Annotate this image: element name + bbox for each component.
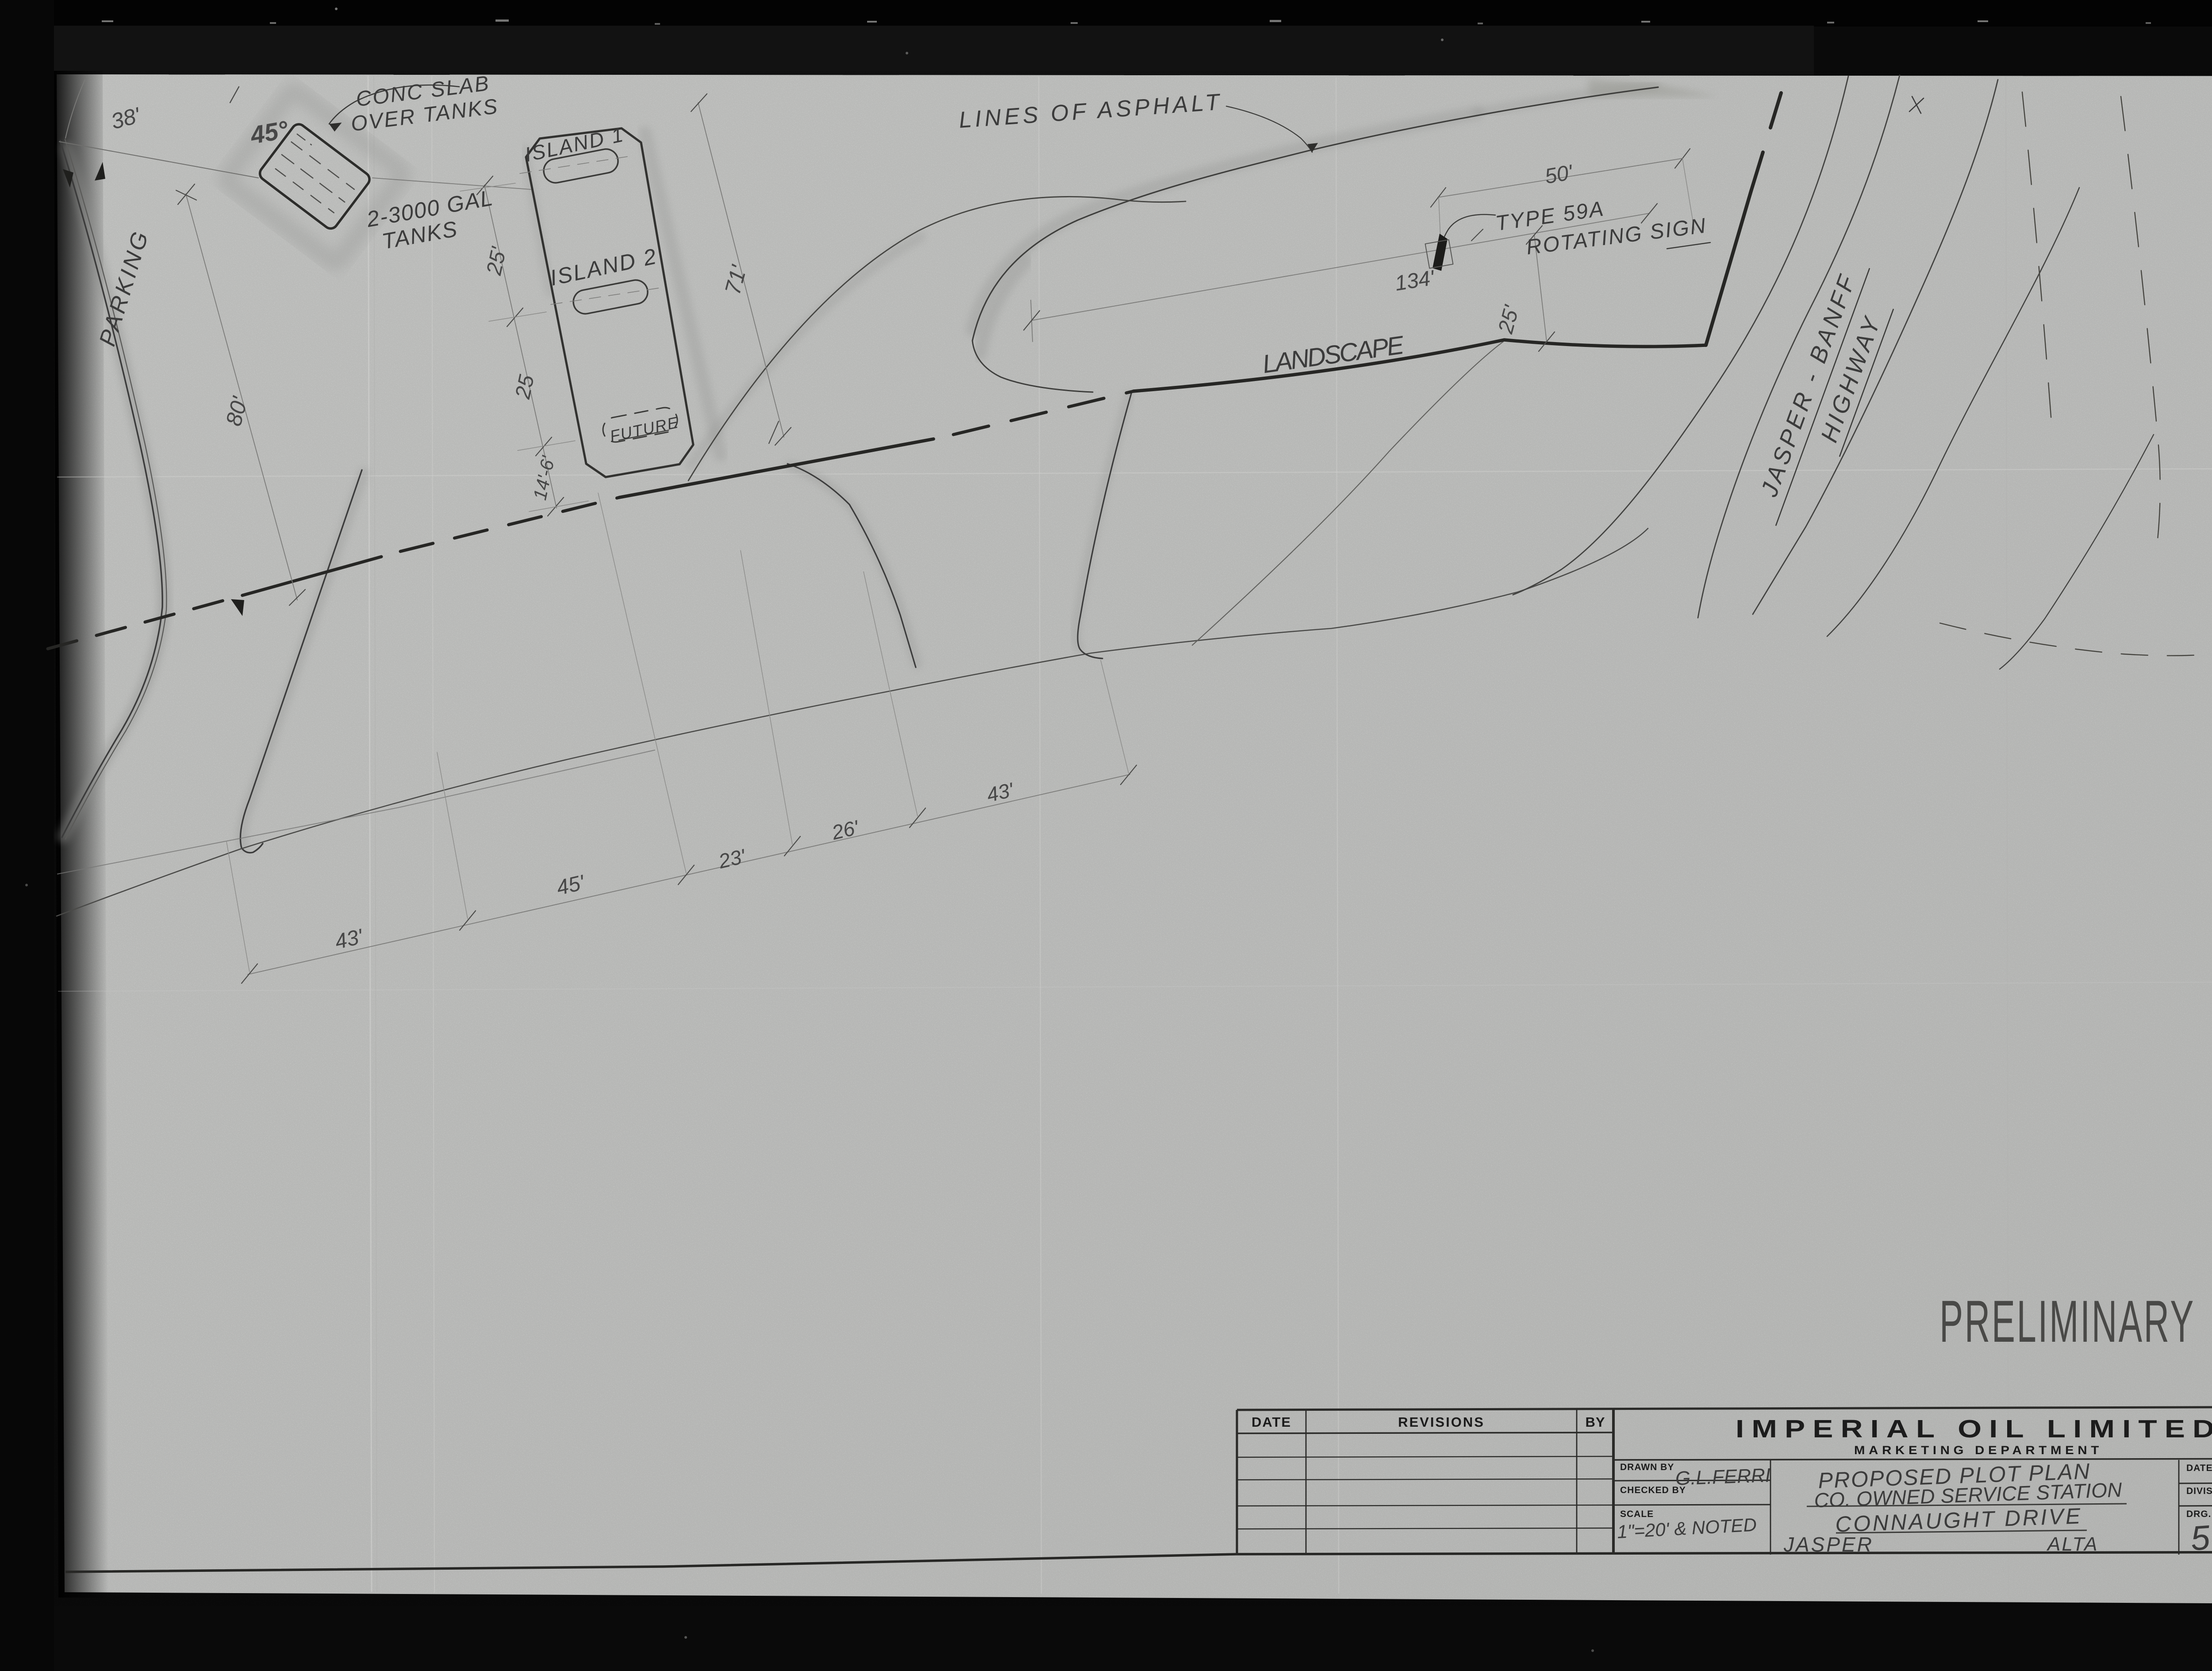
svg-text:DRAWN BY: DRAWN BY <box>1620 1462 1674 1472</box>
svg-text:BY: BY <box>1585 1414 1605 1430</box>
svg-text:DIVISION: DIVISION <box>2186 1486 2212 1496</box>
svg-text:JASPER: JASPER <box>1783 1533 1874 1556</box>
svg-text:25: 25 <box>511 373 539 401</box>
svg-text:MARKETING DEPARTMENT: MARKETING DEPARTMENT <box>1854 1444 2103 1457</box>
svg-text:PRELIMINARY: PRELIMINARY <box>1939 1289 2195 1355</box>
svg-text:50': 50' <box>1543 161 1575 189</box>
svg-text:SCALE: SCALE <box>1620 1509 1654 1519</box>
svg-text:G.L.FERRI: G.L.FERRI <box>1675 1464 1771 1489</box>
svg-text:ALTA: ALTA <box>2046 1533 2099 1555</box>
svg-text:IMPERIAL OIL LIMITED: IMPERIAL OIL LIMITED <box>1736 1415 2212 1443</box>
svg-text:REVISIONS: REVISIONS <box>1398 1414 1485 1430</box>
svg-text:DATE: DATE <box>2186 1463 2212 1473</box>
svg-text:DATE: DATE <box>1252 1414 1291 1430</box>
